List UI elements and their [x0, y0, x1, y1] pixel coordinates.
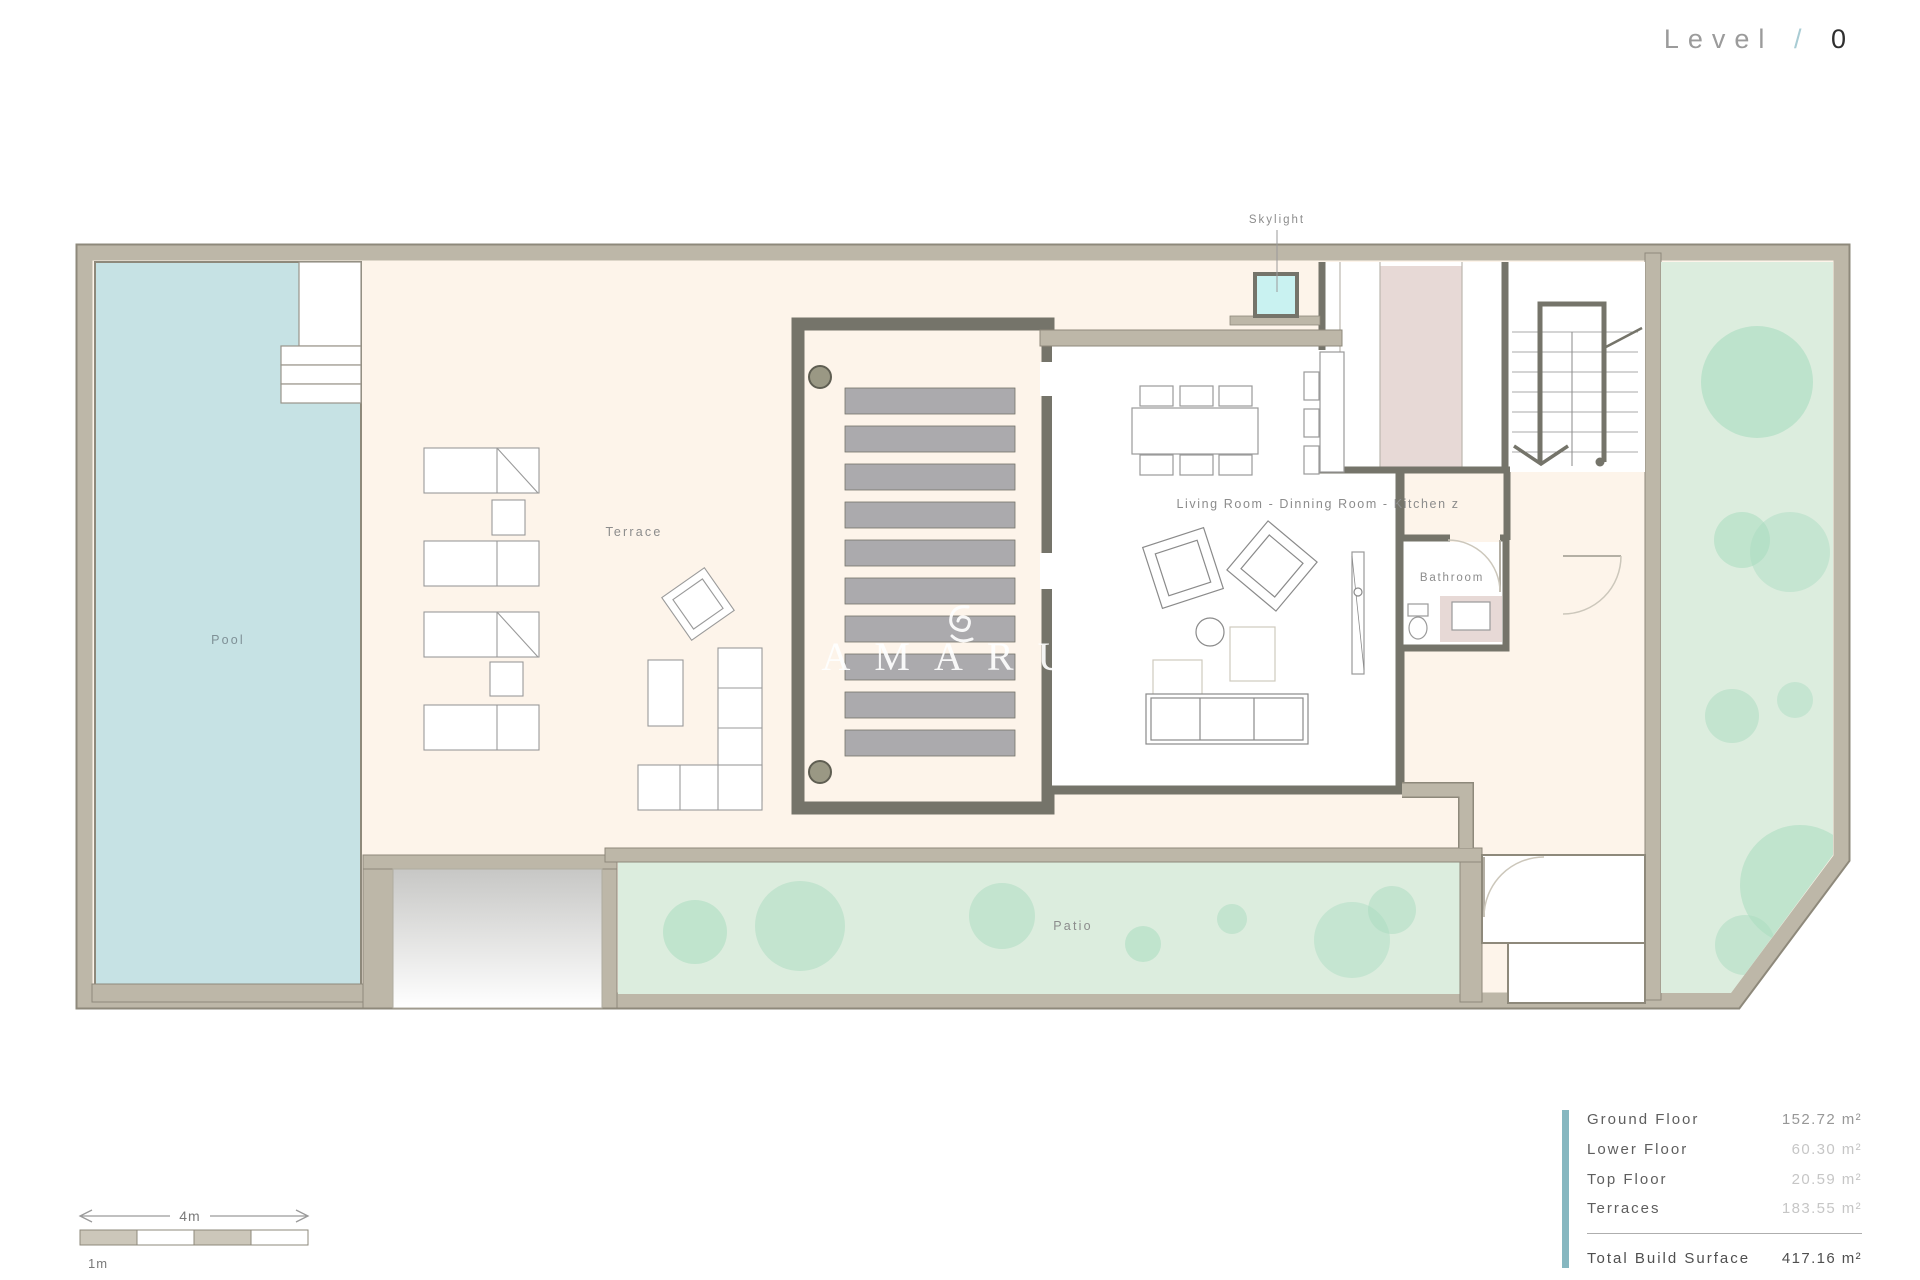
area-row: Lower Floor 60.30 m² [1587, 1142, 1862, 1157]
bar-stool [1304, 409, 1319, 437]
area-value: 60.30 m² [1792, 1142, 1862, 1157]
staircase [1510, 262, 1642, 470]
column [809, 366, 831, 388]
area-value: 183.55 m² [1782, 1201, 1862, 1216]
bar-stool [1304, 446, 1319, 474]
area-label: Ground Floor [1587, 1112, 1699, 1127]
dining-chair [1219, 455, 1252, 475]
toilet-tank [1408, 604, 1428, 616]
table-divider [1587, 1233, 1862, 1234]
outdoor-table [648, 660, 683, 726]
coffee-table [1196, 618, 1224, 646]
pool-area: Pool [92, 262, 363, 1002]
side-table [1230, 627, 1275, 681]
scale-bar: 4m 1m [80, 1208, 308, 1271]
scale-minor-label: 1m [88, 1256, 108, 1271]
level-number: 0 [1831, 24, 1846, 54]
area-row: Terraces 183.55 m² [1587, 1201, 1862, 1216]
window-gap [1040, 553, 1057, 589]
ramp-surface [393, 869, 602, 1008]
patio-area: Patio [618, 862, 1460, 994]
window-gap [1040, 362, 1057, 396]
area-value: 20.59 m² [1792, 1172, 1862, 1187]
floor-plan-drawing: Pool Patio [0, 0, 1920, 1280]
dining-set [1132, 386, 1258, 475]
sun-lounger [424, 541, 539, 586]
sun-lounger [424, 705, 539, 750]
bathroom-label: Bathroom [1420, 572, 1484, 584]
watermark-text: AMARU [822, 634, 1091, 679]
dining-chair [1180, 455, 1213, 475]
bar-stool [1304, 372, 1319, 400]
living-room-label: Living Room - Dinning Room - Kitchen z [1176, 497, 1459, 511]
scale-major-label: 4m [179, 1208, 200, 1224]
entry-room [1482, 855, 1645, 943]
sun-lounger [424, 448, 539, 493]
dining-table [1132, 408, 1258, 454]
area-rows: Ground Floor 152.72 m² Lower Floor 60.30… [1587, 1110, 1862, 1268]
level-label: Level [1664, 24, 1774, 54]
level-separator: / [1794, 24, 1811, 54]
area-label: Lower Floor [1587, 1142, 1688, 1157]
area-label: Top Floor [1587, 1172, 1668, 1187]
area-value: 152.72 m² [1782, 1112, 1862, 1127]
stair-start-dot [1596, 458, 1605, 467]
garden-west-wall [1645, 253, 1661, 1000]
area-label: Terraces [1587, 1201, 1661, 1216]
side-table [490, 662, 523, 696]
pool-edge-wall [92, 984, 363, 1002]
pergola-louvers [798, 324, 1048, 808]
level-indicator: Level / 0 [1664, 24, 1846, 55]
stairwell-floor [1510, 262, 1640, 470]
sliding-door [1352, 552, 1364, 674]
toilet-bowl [1409, 617, 1427, 639]
table-accent-bar [1562, 1110, 1569, 1268]
pool-label: Pool [211, 633, 245, 647]
kitchen-island [1320, 352, 1344, 472]
area-summary-table: Ground Floor 152.72 m² Lower Floor 60.30… [1562, 1110, 1862, 1268]
total-value: 417.16 m² [1782, 1251, 1862, 1266]
side-table [492, 500, 525, 535]
area-total-row: Total Build Surface 417.16 m² [1587, 1251, 1862, 1266]
dining-chair [1140, 386, 1173, 406]
porch [1508, 943, 1645, 1003]
dining-chair [1180, 386, 1213, 406]
wall-segment-patio-east [1460, 862, 1482, 1002]
floorplan-page: Pool Patio [0, 0, 1920, 1280]
terrace-label: Terrace [605, 525, 662, 539]
pantry-strip [1380, 266, 1462, 470]
sofa-cushions [1151, 698, 1303, 740]
bathroom-sink [1452, 602, 1490, 630]
scale-segments [80, 1230, 308, 1245]
patio-wall [605, 848, 1482, 862]
column [809, 761, 831, 783]
total-label: Total Build Surface [1587, 1251, 1750, 1266]
sun-lounger [424, 612, 539, 657]
skylight [1255, 274, 1297, 316]
dining-chair [1219, 386, 1252, 406]
skylight-label: Skylight [1249, 214, 1305, 226]
patio-label: Patio [1053, 919, 1093, 933]
area-row: Top Floor 20.59 m² [1587, 1172, 1862, 1187]
area-row: Ground Floor 152.72 m² [1587, 1112, 1862, 1127]
bathroom-area: Bathroom [1400, 531, 1506, 648]
driveway-ramp [363, 855, 617, 1008]
dining-chair [1140, 455, 1173, 475]
house-north-wall [1040, 330, 1342, 346]
